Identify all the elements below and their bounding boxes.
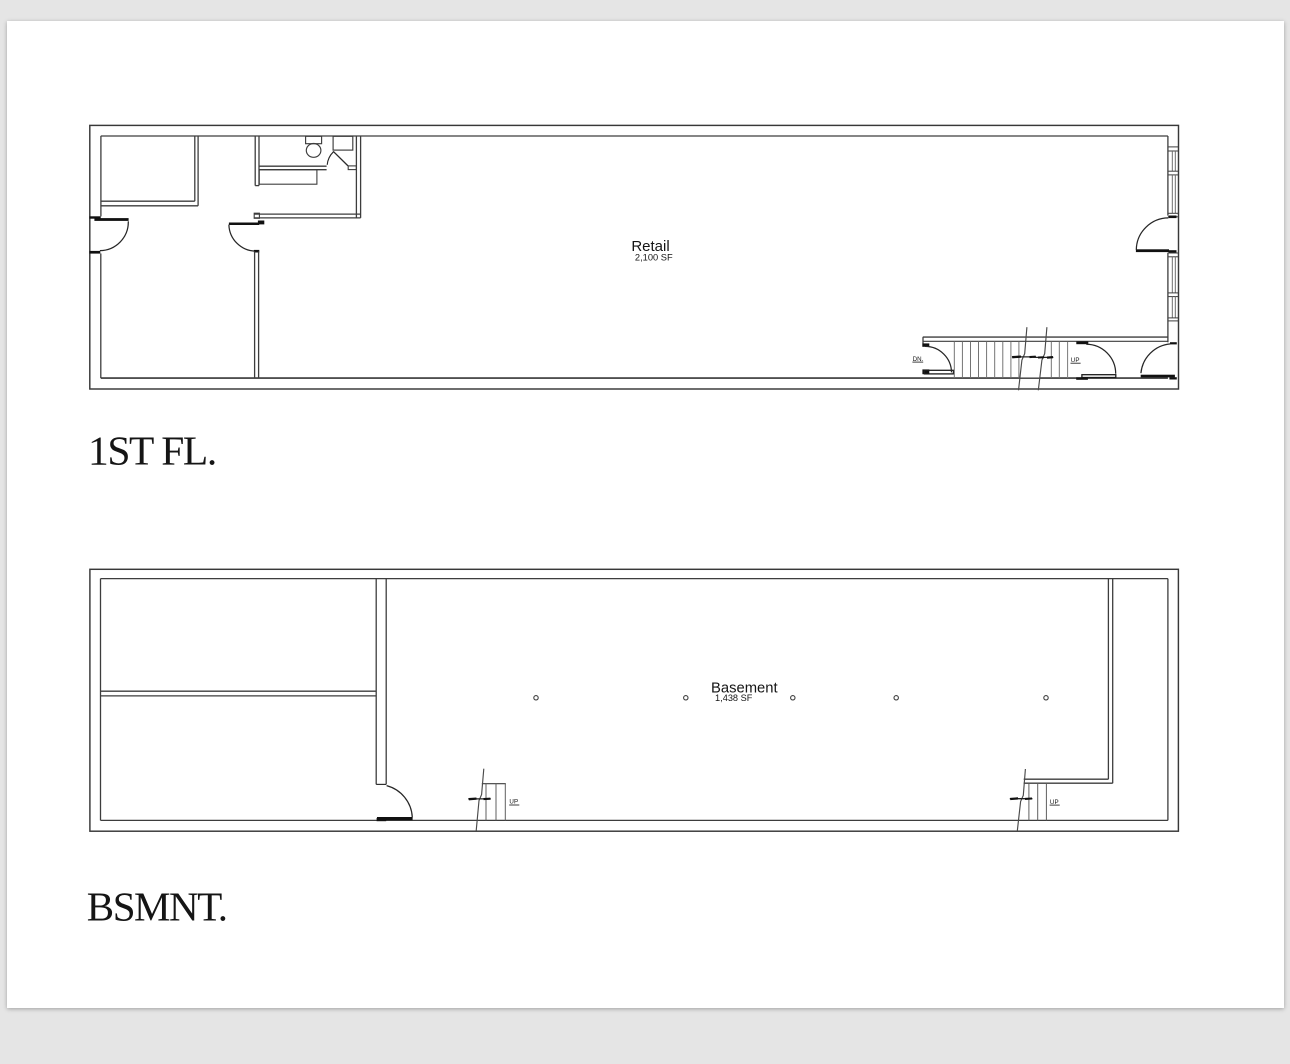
svg-text:2,100 SF: 2,100 SF bbox=[635, 253, 673, 263]
svg-text:BSMNT.: BSMNT. bbox=[87, 883, 227, 929]
svg-text:1,438 SF: 1,438 SF bbox=[715, 693, 753, 703]
svg-text:1ST FL.: 1ST FL. bbox=[88, 428, 216, 474]
